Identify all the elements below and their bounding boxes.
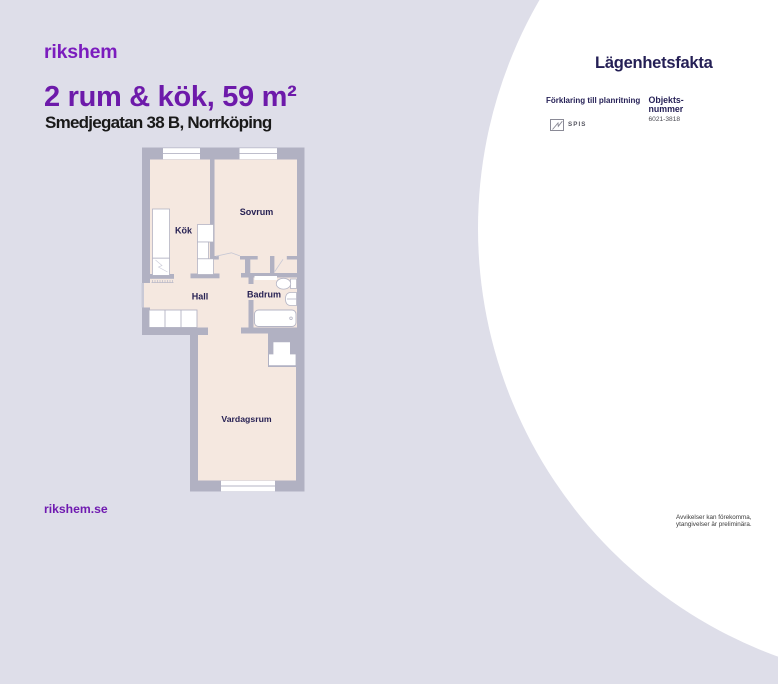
svg-text:Hall: Hall [192, 291, 209, 301]
svg-text:Kök: Kök [175, 225, 193, 235]
svg-text:Vardagsrum: Vardagsrum [221, 414, 271, 424]
svg-text:Sovrum: Sovrum [240, 207, 274, 217]
svg-text:Badrum: Badrum [247, 290, 281, 300]
